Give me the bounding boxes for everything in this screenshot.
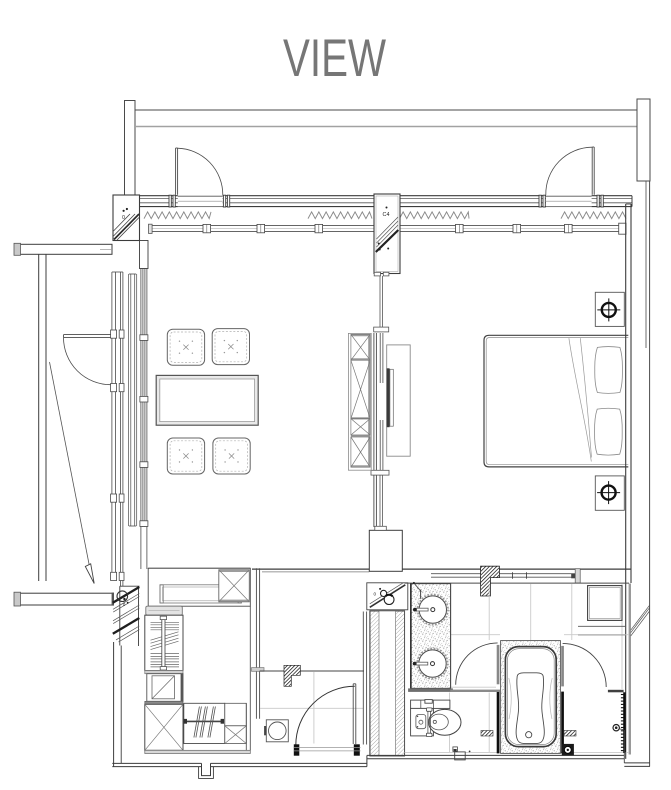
svg-text:VIEW: VIEW bbox=[283, 29, 386, 88]
svg-text:0: 0 bbox=[122, 215, 125, 221]
svg-text:0: 0 bbox=[123, 602, 126, 607]
svg-text:0: 0 bbox=[374, 591, 377, 596]
svg-text:C4: C4 bbox=[383, 212, 390, 218]
